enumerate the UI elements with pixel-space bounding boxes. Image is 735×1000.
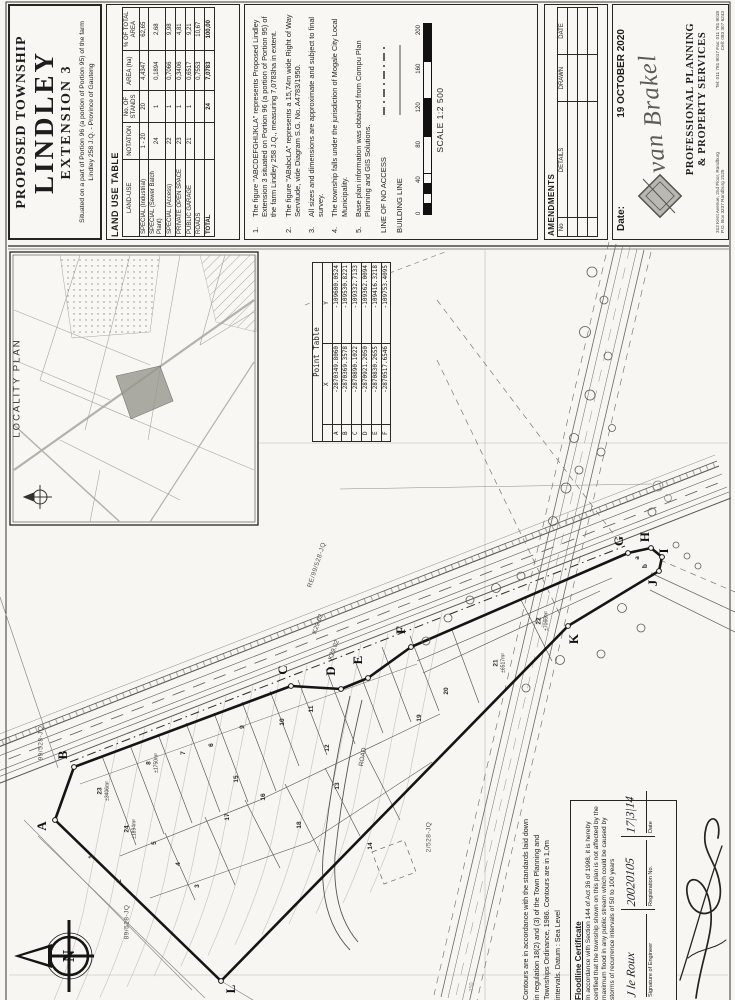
registration-no-cell: 20020105 Registration No. [621,836,655,909]
table-header-cell: LAND-USE [123,159,140,236]
table-cell: -2870830.2655 [371,343,381,425]
registration-no-handwritten: 20020105 [622,839,639,907]
table-cell: 9,98 [165,8,175,51]
date-handwritten: 17|3|14 [622,792,638,834]
table-cell: -109753.4095 [381,263,391,344]
table-cell: -2870369.3578 [342,343,352,425]
firm-address2: P.O. Box 3237 Randburg 2125 [720,152,726,233]
table-cell [567,54,577,101]
table-cell: 1 [165,91,175,123]
table-cell: 62,65 [139,8,149,51]
table-cell: 24 [149,122,166,159]
table-cell: PRIVATE OPEN SPACE [175,159,185,236]
table-cell [587,102,597,218]
scale-label: SCALE 1:2 500 [435,25,445,215]
land-use-table: LAND-USENOTATIONNo. OF STANDSAREA (ha)% … [122,7,215,237]
firm-cell: Cell: 083 307 6243 [720,11,726,88]
land-use-table-title: LAND USE TABLE [110,5,120,237]
table-cell: 0,7553 [195,51,205,91]
line-of-no-access-label: LINE OF NO ACCESS [379,115,388,233]
table-cell: 10,67 [195,8,205,51]
servitude-square [372,840,416,884]
table-cell: SPECIAL (Sewer Batch Plant) [149,159,166,236]
table-cell: -109530.8221 [342,263,352,344]
scale-tick: 80 [416,141,422,148]
contour-note-line: in regulation 18(2) and (3) of the Town … [532,752,543,1000]
table-cell: 1 [149,91,166,123]
proposed-township-label: PROPOSED TOWNSHIP [14,6,30,238]
table-cell [195,91,205,123]
table-header-cell: DATE [558,8,568,55]
contour-note-line: Contours are in accordance with the stan… [521,752,532,1000]
engineer-signature-cell: J le Roux Signature of Engineer [621,909,655,1000]
contour-note-line: intervals. Datum : Sea Level [553,752,564,1000]
scale-bar-block: 04080120160200 SCALE 1:2 500 [416,19,445,215]
scale-tick: 120 [416,102,422,112]
table-cell: -109362.0094 [361,263,371,344]
notes-list: 1.The figure "ABCDEFGHIJKLA" represents … [251,11,372,233]
notes-panel: 1.The figure "ABCDEFGHIJKLA" represents … [244,4,538,240]
table-cell: 24 [205,91,215,123]
amendments-panel: AMENDMENTS NoDETAILSDRAWNDATE [544,4,608,240]
title-panel: PROPOSED TOWNSHIP LINDLEY EXTENSION 3 Si… [8,4,102,240]
table-cell: 9,21 [185,8,195,51]
table-cell: 0,7066 [165,51,175,91]
table-header-cell: NOTATION [123,122,140,159]
building-line-symbol [397,45,403,115]
contour-note-line: Townships Ordinance, 1986. Contours are … [542,752,553,1000]
table-cell: 1 [185,91,195,123]
table-cell: 4,81 [175,8,185,51]
note-item: 2.The figure "ABabcLA" represents a 15,7… [284,11,302,233]
floodline-body: In accordance with Section 144 of Act 36… [585,805,617,1000]
table-cell: -2870517.6546 [381,343,391,425]
table-cell: 23 [175,122,185,159]
engineer-signature [680,819,726,998]
table-cell: 1 - 20 [139,122,149,159]
firm-line2: & PROPERTY SERVICES [697,19,709,179]
table-cell [567,102,577,218]
note-item: 1.The figure "ABCDEFGHIJKLA" represents … [251,11,279,233]
table-cell: 21 [185,122,195,159]
floodline-heading: Floodline Certificate [574,805,583,1000]
signature-row: J le Roux Signature of Engineer 20020105… [621,805,655,1000]
table-cell: A [332,425,342,442]
table-cell: 2,68 [149,8,166,51]
table-cell: 0,6517 [185,51,195,91]
table-cell: 0,1894 [149,51,166,91]
amendments-table: NoDETAILSDRAWNDATE [557,7,598,237]
table-header-cell: Y [322,263,332,344]
table-cell: SPECIAL (Industrial) [139,159,149,236]
floodline-certificate: Floodline Certificate In accordance with… [570,800,677,1000]
scale-tick: 0 [416,212,422,215]
building-line-label: BUILDING LINE [395,115,404,233]
scale-bar [423,23,432,215]
land-use-panel: LAND USE TABLE LAND-USENOTATIONNo. OF ST… [106,4,240,240]
legend-row-no-access: LINE OF NO ACCESS [379,11,388,233]
firm-line1: PROFESSIONAL PLANNING [685,19,697,179]
note-item: 3.All sizes and dimensions are approxima… [307,11,325,233]
table-cell: 100,00 [205,8,215,51]
table-cell: F [381,425,391,442]
table-cell: 1 [175,91,185,123]
table-cell: D [361,425,371,442]
table-cell [577,218,587,237]
table-cell: 20 [139,91,149,123]
date-cell: 17|3|14 Date [621,790,655,836]
table-cell: -109600.0524 [332,263,342,344]
table-header-cell: % OF TOTAL AREA [123,8,140,51]
amendments-title: AMENDMENTS [547,5,556,236]
contour-note: Contours are in accordance with the stan… [521,752,568,1000]
scale-tick: 200 [416,25,422,35]
table-cell: PUBLIC GARAGE [185,159,195,236]
table-cell: E [371,425,381,442]
table-cell [205,122,215,159]
firm-name: van Brakel [634,53,672,174]
title-subtitle: Situated on a part of Portion 96 (a port… [79,6,96,238]
date-label: Date: [616,206,627,231]
point-table: Point TableXYA-2870349.8060-109600.0524B… [312,262,391,442]
line-of-no-access-symbol [381,45,387,115]
table-cell: -2870921.2050 [361,343,371,425]
table-cell [577,54,587,101]
engineer-name-handwritten: J le Roux [622,912,640,999]
scale-tick: 40 [416,176,422,183]
table-cell [577,8,587,55]
table-cell [587,54,597,101]
north-arrow [14,920,94,992]
table-cell: SPECIAL (Access) [165,159,175,236]
note-item: 5.Base plan information was obtained fro… [354,11,372,233]
table-cell: -109416.3218 [371,263,381,344]
engineer-signature-label: Signature of Engineer [646,914,654,997]
extension-label: EXTENSION 3 [59,6,74,238]
table-header-cell: No [558,218,568,237]
table-cell: ROADS [195,159,205,236]
scale-ticks: 04080120160200 [416,25,422,215]
table-cell: 0,3406 [175,51,185,91]
table-header-cell: No. OF STANDS [123,91,140,123]
table-cell [195,122,205,159]
table-header-cell: X [322,343,332,425]
table-header-cell [322,425,332,442]
table-cell [567,8,577,55]
table-cell: 4,4347 [139,51,149,91]
date-value: 19 OCTOBER 2020 [616,29,627,118]
table-header-cell: DRAWN [558,54,568,101]
table-header-cell: DETAILS [558,102,568,218]
table-cell: -2870349.8060 [332,343,342,425]
firm-panel: Date: 19 OCTOBER 2020 van Brakel PROFESS… [612,4,729,240]
table-cell [567,218,577,237]
table-cell: C [352,425,362,442]
scale-tick: 160 [416,64,422,74]
table-cell: B [342,425,352,442]
table-cell: 7,0783 [205,51,215,91]
locality-plan-inset [10,252,258,525]
table-header-cell: AREA (ha) [123,51,140,91]
registration-no-label: Registration No. [646,840,654,906]
table-cell: -2870890.1022 [352,343,362,425]
township-name: LINDLEY [30,6,59,238]
plan-sheet: LOCALITY PLAN N ABCDEFGHIJKLabcK29.02K29… [0,0,735,1000]
table-cell [587,218,597,237]
date-cell-label: Date [646,791,654,833]
table-cell [587,8,597,55]
point-table-title: Point Table [313,263,323,442]
point-table-panel: Point TableXYA-2870349.8060-109600.0524B… [312,258,437,442]
table-cell [577,102,587,218]
table-cell: 22 [165,122,175,159]
table-cell: TOTAL [205,159,215,236]
legend-row-building-line: BUILDING LINE [395,11,404,233]
table-cell: -109332.7133 [352,263,362,344]
note-item: 4.The township falls under the jurisdict… [330,11,348,233]
firm-logo [631,167,689,225]
